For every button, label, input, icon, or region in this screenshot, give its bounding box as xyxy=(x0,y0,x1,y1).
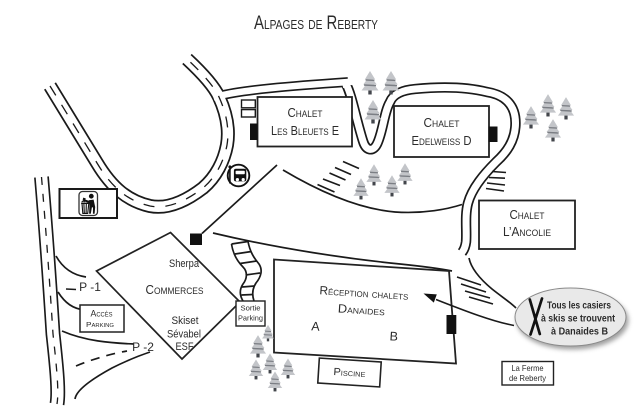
svg-text:Accès: Accès xyxy=(91,309,113,319)
svg-text:Chalet: Chalet xyxy=(510,208,545,222)
svg-text:Edelweiss D: Edelweiss D xyxy=(412,134,472,148)
svg-text:Tous les casiers: Tous les casiers xyxy=(547,300,611,312)
svg-text:ESF: ESF xyxy=(176,341,194,353)
svg-text:P -1: P -1 xyxy=(79,280,101,294)
svg-text:Commerces: Commerces xyxy=(146,283,204,297)
svg-text:Les Bleuets E: Les Bleuets E xyxy=(271,124,339,138)
svg-text:L’Ancolie: L’Ancolie xyxy=(503,225,551,239)
svg-text:Sherpa: Sherpa xyxy=(169,258,200,270)
svg-text:Sortie: Sortie xyxy=(241,304,261,313)
svg-text:A: A xyxy=(311,319,321,334)
svg-text:La Ferme: La Ferme xyxy=(512,364,544,373)
svg-text:Parking: Parking xyxy=(86,322,114,329)
svg-text:Parking: Parking xyxy=(238,314,263,323)
svg-text:Piscine: Piscine xyxy=(333,366,366,380)
svg-text:Sévabel: Sévabel xyxy=(167,329,201,341)
svg-text:Chalet: Chalet xyxy=(288,106,323,120)
svg-text:à Danaides B: à Danaides B xyxy=(551,326,608,338)
svg-text:P -2: P -2 xyxy=(132,340,154,354)
svg-text:Chalet: Chalet xyxy=(424,116,460,130)
svg-text:à skis se trouvent: à skis se trouvent xyxy=(541,313,615,325)
svg-text:de Reberty: de Reberty xyxy=(509,374,547,383)
svg-text:B: B xyxy=(389,329,398,343)
svg-text:Danaides: Danaides xyxy=(337,301,385,318)
svg-text:Alpages de Reberty: Alpages de Reberty xyxy=(254,13,378,34)
svg-text:Skiset: Skiset xyxy=(172,315,199,327)
